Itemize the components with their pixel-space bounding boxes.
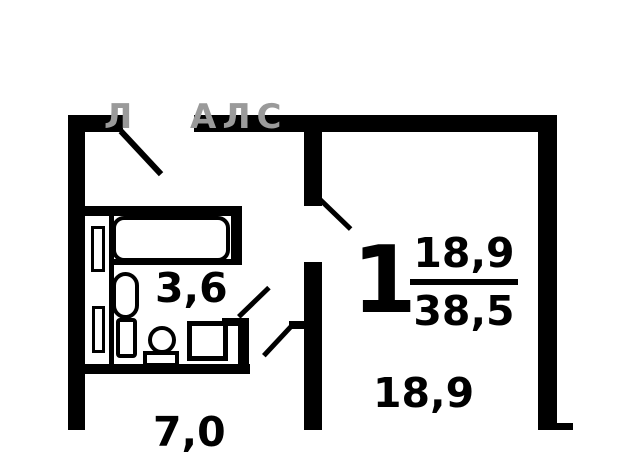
total-area-denominator: 38,5 (410, 291, 518, 332)
living-room-door-leaf (317, 196, 353, 231)
ventilation-duct-upper-icon (91, 226, 105, 272)
toilet-icon (112, 272, 139, 319)
sink-base-icon (143, 351, 179, 367)
watermark-left: Л (104, 100, 138, 134)
room-area-label: 18,9 (373, 373, 474, 414)
floorplan-page: { "watermark": { "left_part": "Л", "righ… (0, 0, 640, 430)
wall-living-lower (304, 262, 322, 430)
wall-right-foot (557, 423, 573, 430)
toilet-tank-icon (116, 318, 137, 358)
washing-machine-icon (187, 321, 228, 361)
sink-icon (148, 326, 176, 354)
bathroom-door-leaf (237, 286, 271, 319)
bathroom-area-label: 3,6 (155, 268, 228, 309)
watermark-right: АЛС (190, 100, 288, 134)
kitchen-door-leaf (262, 325, 293, 358)
ventilation-duct-lower-icon (92, 306, 105, 353)
bathtub-icon (112, 216, 230, 262)
wall-bathroom-right-upper (231, 206, 242, 263)
wall-left (68, 115, 85, 430)
wall-right (538, 115, 557, 430)
living-area-numerator: 18,9 (410, 233, 518, 274)
area-fraction-line (410, 279, 518, 285)
room-number-label: 1 (352, 234, 417, 327)
kitchen-area-label: 7,0 (153, 412, 226, 453)
